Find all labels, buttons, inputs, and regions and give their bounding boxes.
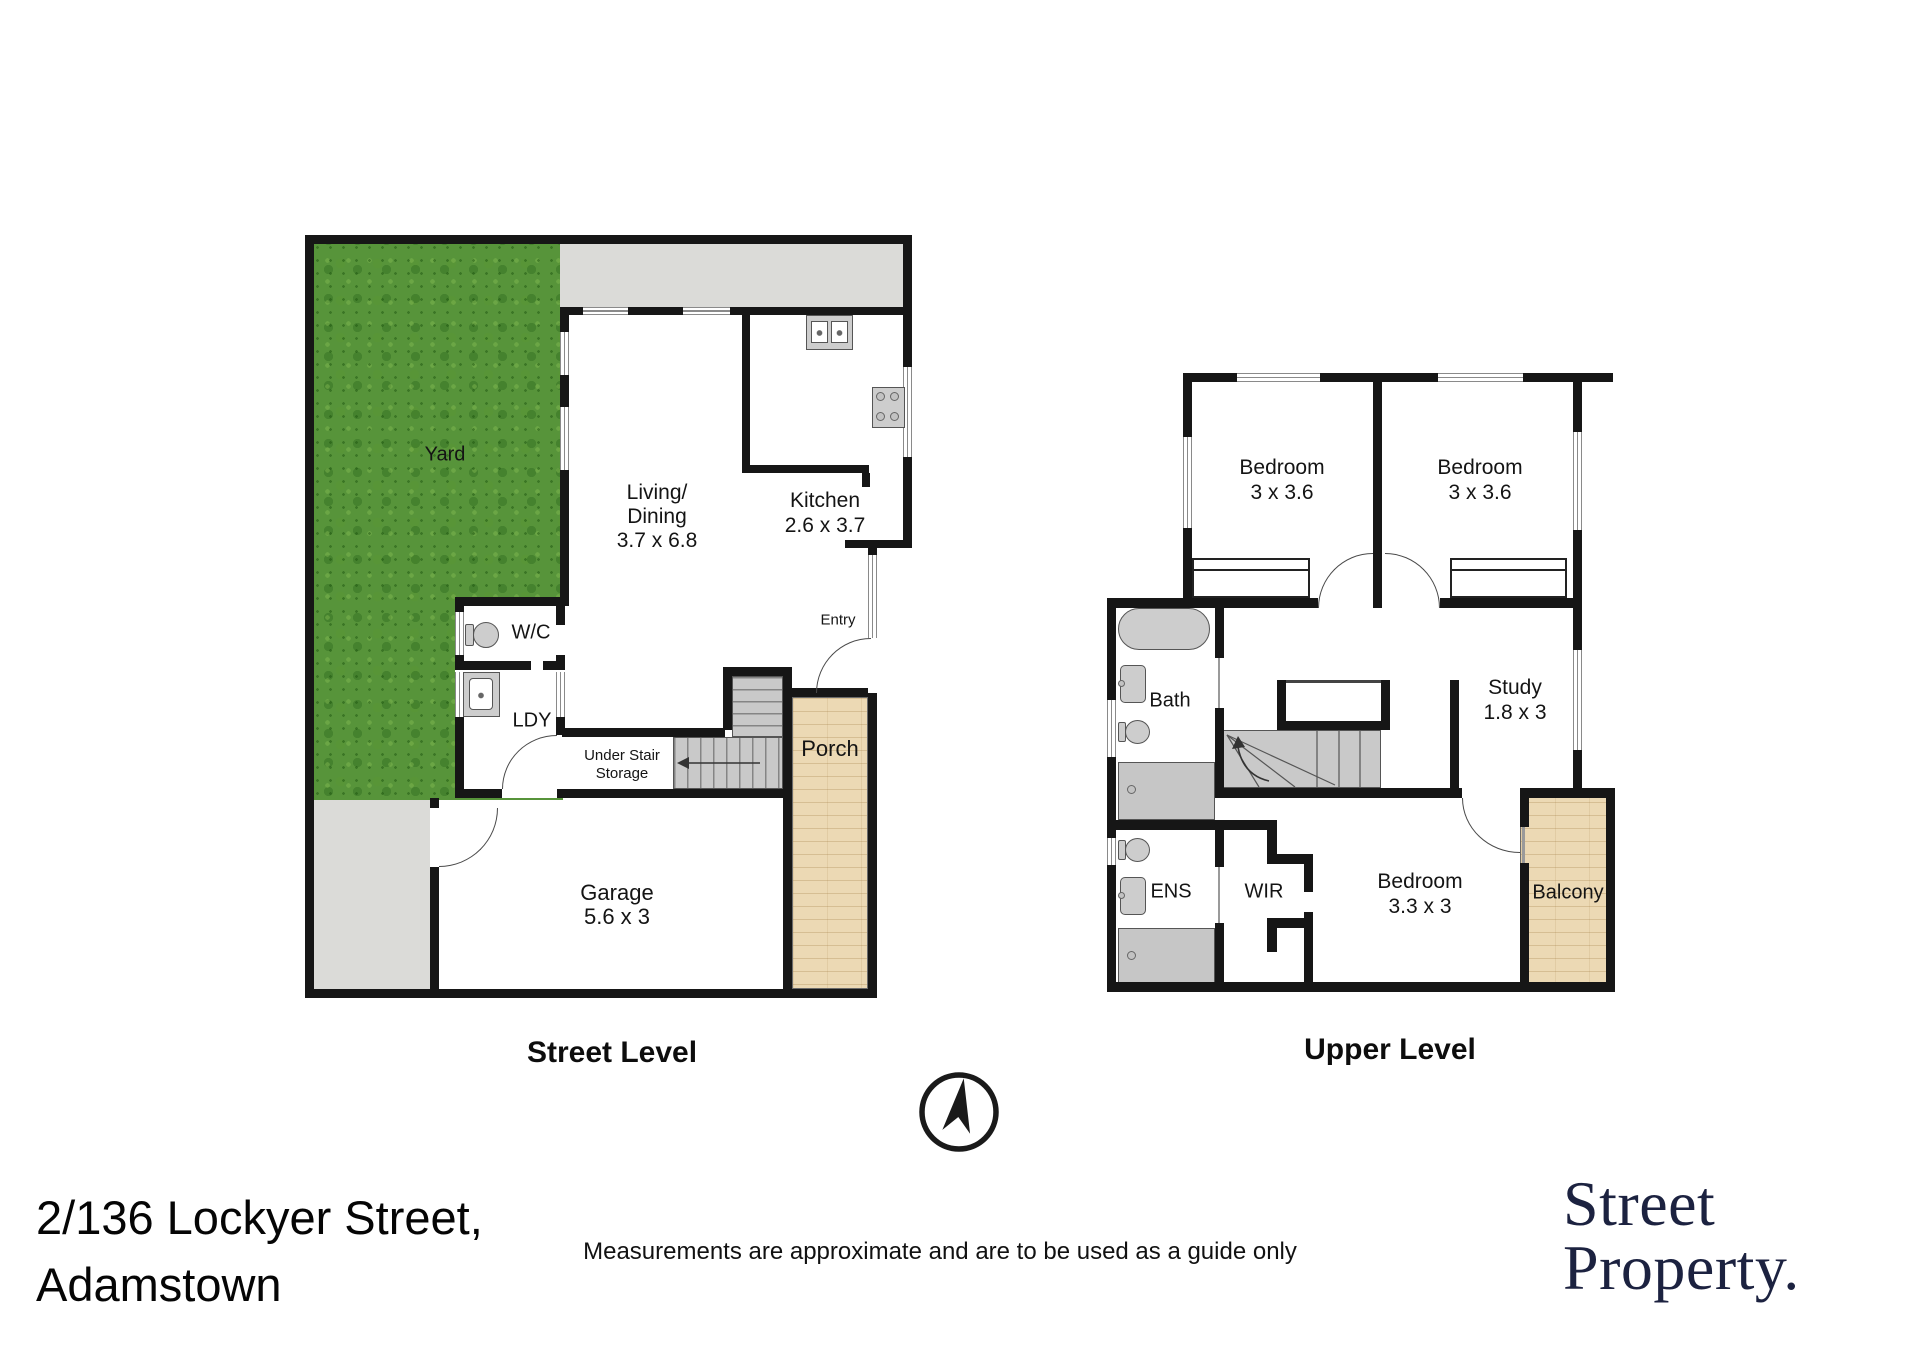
north-compass-icon [913,1066,1005,1158]
wall-segment [1183,373,1192,437]
wall-segment [1107,820,1224,830]
kitchen-sink [806,315,853,350]
bath-shower [1118,762,1215,820]
window [560,332,569,375]
wall-segment [723,667,732,730]
ens-shower [1118,928,1215,985]
wall-segment [742,315,750,473]
wall-segment [455,717,464,798]
wall-segment [628,307,683,315]
label-line: Entry [820,611,855,628]
logo-line1: Street [1563,1172,1800,1236]
room-label-wc: W/C [512,621,551,644]
label-line: Dining [617,505,698,529]
window [1438,373,1523,382]
label-line: ENS [1150,880,1191,903]
label-line: Bedroom [1239,455,1324,480]
label-line: Storage [584,765,660,783]
label-line: Garage [580,881,653,905]
wall-segment [1215,608,1224,658]
wall-segment [560,307,569,332]
address-line1: 2/136 Lockyer Street, [36,1184,483,1251]
door-leaf [1218,867,1220,923]
label-line: Bedroom [1377,869,1462,894]
room-label-ens: ENS [1150,880,1191,903]
wall-segment [1520,863,1529,982]
room-label-under-stair: Under Stair Storage [584,747,660,783]
wall-segment [305,235,314,998]
wall-segment [1215,708,1224,790]
bedroom2-door-arc [1385,553,1440,608]
wall-segment [730,307,912,315]
bedroom1-robe [1192,558,1310,598]
label-line: Bedroom [1437,455,1522,480]
upper-level-title: Upper Level [1230,1033,1550,1067]
wall-segment [1183,528,1192,598]
bedroom1-door-arc [1318,553,1373,608]
bedroom2-robe [1450,558,1567,598]
door-leaf [1218,658,1220,708]
wall-segment [1267,854,1313,864]
wall-segment [868,548,877,555]
wall-segment [1373,382,1382,608]
bath-toilet-bowl [1125,720,1150,744]
wall-segment [1573,605,1582,650]
entry-door-arc [816,638,871,693]
wall-segment [1573,373,1582,432]
wall-segment [562,728,725,737]
wall-segment [1304,864,1313,892]
garage-side-door-arc [439,808,498,867]
wall-segment [1277,721,1390,730]
window [556,672,565,717]
room-label-study: Study 1.8 x 3 [1483,675,1546,725]
window [1107,838,1116,865]
label-line: Porch [801,736,858,762]
wall-segment [557,789,792,798]
label-line: LDY [513,709,552,732]
label-line: W/C [512,621,551,644]
room-label-wir: WIR [1245,880,1284,903]
stairs-lower-flight [673,737,783,789]
label-line: Kitchen [785,488,866,513]
label-line: Yard [425,443,466,466]
wall-segment [1107,865,1116,982]
label-line: Balcony [1532,881,1603,904]
address-line2: Adamstown [36,1251,483,1318]
street-level-plan: Yard Living/ Dining 3.7 x 6.8 Kitchen 2.… [305,235,912,998]
wall-segment [783,667,792,998]
wall-segment [305,235,912,244]
door-leaf [1522,827,1525,863]
measurements-disclaimer: Measurements are approximate and are to … [500,1238,1380,1266]
stairwell-railing [1286,680,1381,683]
label-line: 3 x 3.6 [1437,480,1522,505]
label-line: WIR [1245,880,1284,903]
room-label-garage: Garage 5.6 x 3 [580,881,653,929]
label-line: 3.3 x 3 [1377,894,1462,919]
wall-segment [1520,797,1529,827]
floorplan-page: Yard Living/ Dining 3.7 x 6.8 Kitchen 2.… [0,0,1920,1356]
wall-segment [845,540,912,548]
room-label-entry: Entry [820,611,855,628]
window [1183,437,1192,528]
wall-segment [862,473,870,487]
room-label-bedroom2: Bedroom 3 x 3.6 [1437,455,1522,505]
wall-segment [1304,928,1313,982]
wall-segment [1267,918,1313,928]
label-line: Bath [1149,689,1190,712]
room-label-ldy: LDY [513,709,552,732]
wall-segment [1606,788,1615,992]
window [1573,432,1582,530]
logo-line2: Property. [1563,1236,1800,1300]
bath-vanity [1120,665,1146,703]
wall-segment [455,597,464,612]
wall-segment [1107,598,1220,608]
room-label-bath: Bath [1149,689,1190,712]
label-line: 3 x 3.6 [1239,480,1324,505]
stove-cooktop [872,387,905,428]
room-label-yard: Yard [425,443,466,466]
label-line: Study [1483,675,1546,700]
wall-segment [1573,750,1582,788]
wall-segment [1523,373,1613,382]
room-label-bedroom3: Bedroom 3.3 x 3 [1377,869,1462,919]
label-line: 3.7 x 6.8 [617,529,698,553]
wc-toilet-bowl [473,622,499,648]
wall-segment [455,597,569,606]
wall-segment [1320,373,1438,382]
window [683,307,730,315]
window [455,612,464,655]
driveway-region [314,800,430,989]
wall-segment [1440,598,1582,608]
label-line: Living/ [617,481,698,505]
property-address: 2/136 Lockyer Street, Adamstown [36,1184,483,1318]
window [868,555,877,638]
wall-segment [560,375,569,407]
wall-segment [430,867,439,989]
upper-level-plan: Bedroom 3 x 3.6 Bedroom 3 x 3.6 Bath Stu… [1107,373,1615,992]
wall-segment [1215,788,1462,798]
label-line: Under Stair [584,747,660,765]
street-property-logo: Street Property. [1563,1172,1800,1300]
wall-segment [1573,530,1582,605]
window [1237,373,1320,382]
wall-segment [1107,982,1615,992]
window [583,307,628,315]
label-line: 1.8 x 3 [1483,700,1546,725]
wall-segment [455,789,502,798]
upper-stairs-region [1220,730,1381,788]
wall-segment [1107,598,1116,700]
wall-segment [742,465,869,473]
ens-vanity [1120,877,1146,915]
room-label-kitchen: Kitchen 2.6 x 3.7 [785,488,866,538]
room-label-bedroom1: Bedroom 3 x 3.6 [1239,455,1324,505]
stairs-up-flight [732,676,783,737]
street-level-title: Street Level [452,1036,772,1070]
room-label-porch: Porch [801,736,858,762]
window [560,407,569,470]
room-label-balcony: Balcony [1532,881,1603,904]
wall-segment [1267,928,1277,952]
label-line: 2.6 x 3.7 [785,513,866,538]
wall-segment [1450,680,1459,788]
bathtub [1118,608,1210,650]
wall-segment [868,693,877,998]
wall-segment [723,667,792,676]
window [1573,650,1582,750]
wall-segment [455,661,531,670]
bedroom3-door-arc [1462,798,1520,853]
label-line: 5.6 x 3 [580,905,653,929]
ens-toilet-bowl [1125,838,1150,862]
wall-segment [556,655,565,670]
wall-segment [1215,923,1224,982]
window [1107,700,1116,757]
wall-segment [1215,820,1277,830]
wall-segment [430,798,439,808]
wall-segment [1520,788,1615,798]
wall-segment [556,597,565,625]
laundry-sink [463,672,500,717]
wall-segment [560,470,569,605]
rear-patio-region [560,241,906,309]
room-label-living: Living/ Dining 3.7 x 6.8 [617,481,698,553]
